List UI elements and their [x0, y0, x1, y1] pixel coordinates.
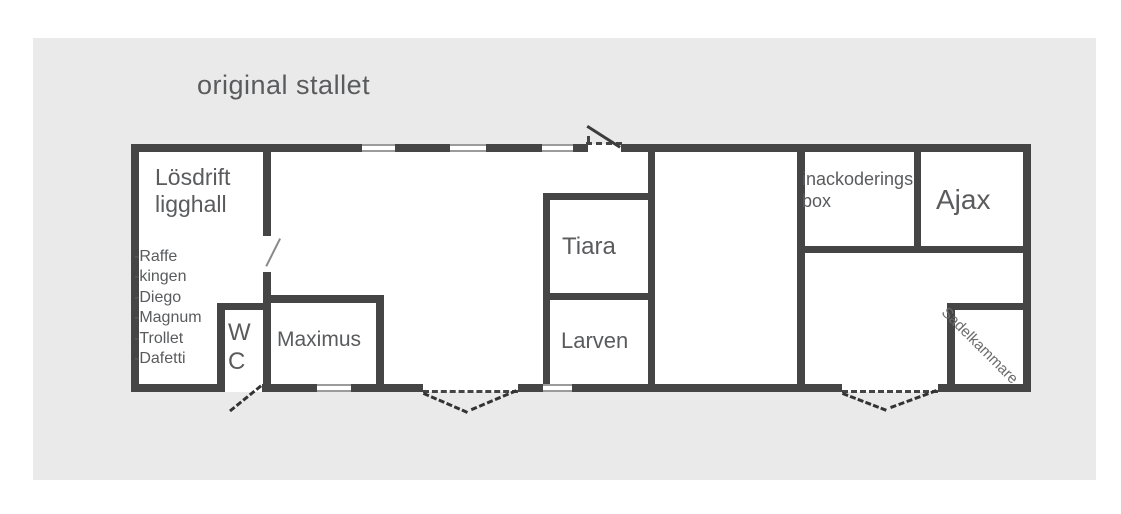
plan-title: original stallet: [197, 70, 370, 101]
wall-box-ajax-divider: [914, 152, 921, 253]
wall-maximus-right: [376, 295, 384, 384]
door-top-jamb-tick: [587, 136, 590, 145]
wall-maximus-top: [263, 295, 383, 303]
window-top-2: [450, 144, 486, 152]
room-label-maximus: Maximus: [277, 328, 361, 352]
horse-name: -Dafetti: [134, 349, 202, 369]
wall-losdrift-lower: [263, 272, 271, 384]
window-top-3: [542, 144, 573, 152]
horse-name: -Diego: [134, 288, 202, 308]
horse-name: -kingen: [134, 267, 202, 287]
room-label-inack-line1: inackoderings: [802, 168, 913, 190]
window-top-1: [362, 144, 395, 152]
horse-name: -Raffe: [134, 247, 202, 267]
floor-plan-page: original stallet Lösdrift ligghall: [0, 0, 1121, 514]
wall-tiara-top: [543, 193, 655, 200]
double-door-1-dash: [423, 390, 518, 393]
room-label-inackoderingsbox: inackoderings box: [802, 168, 913, 212]
horse-name: -Trollet: [134, 329, 202, 349]
wall-mid-vertical: [648, 152, 655, 384]
wall-losdrift-upper: [263, 152, 271, 236]
wall-sadel-top: [947, 303, 1023, 310]
wall-tiara-larven-divider: [543, 293, 655, 300]
window-maximus: [317, 384, 351, 392]
wall-tiara-left: [543, 193, 550, 384]
room-label-tiara: Tiara: [562, 233, 616, 261]
room-label-ajax: Ajax: [936, 184, 990, 216]
window-larven: [543, 384, 572, 392]
wall-wc-top: [217, 303, 271, 310]
room-label-larven: Larven: [561, 328, 628, 354]
room-label-inack-line2: box: [802, 190, 913, 212]
room-label-losdrift-line1: Lösdrift: [155, 164, 230, 191]
wall-wc-left: [217, 303, 225, 384]
room-label-losdrift-line2: ligghall: [155, 191, 230, 218]
room-label-wc: W C: [228, 318, 260, 376]
room-label-losdrift: Lösdrift ligghall: [155, 164, 230, 218]
horse-list: -Raffe -kingen -Diego -Magnum -Trollet -…: [134, 247, 202, 369]
horse-name: -Magnum: [134, 308, 202, 328]
